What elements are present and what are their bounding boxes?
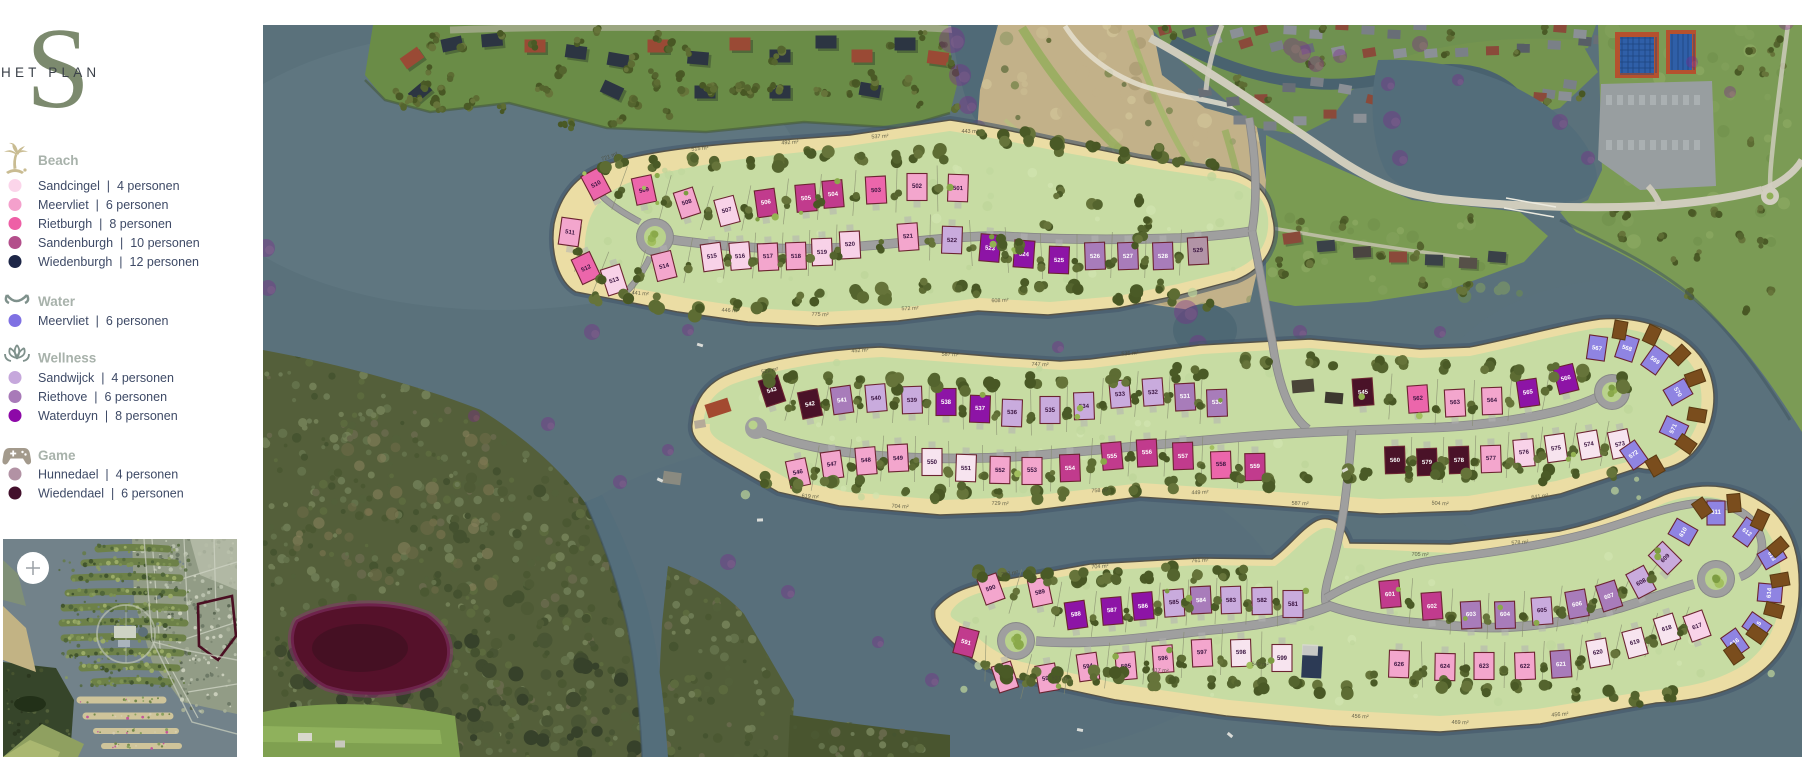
svg-text:581: 581: [1288, 602, 1299, 608]
svg-text:537: 537: [975, 406, 986, 412]
svg-text:704 m²: 704 m²: [1091, 563, 1109, 570]
svg-text:533: 533: [1115, 392, 1126, 399]
svg-text:Sandenburgh | 10 personen: Sandenburgh | 10 personen: [38, 236, 200, 250]
svg-text:526: 526: [1090, 254, 1101, 260]
svg-text:517: 517: [763, 254, 774, 261]
svg-text:582: 582: [1257, 598, 1268, 604]
svg-text:576: 576: [1519, 450, 1530, 457]
svg-text:518: 518: [791, 254, 802, 260]
svg-text:521: 521: [903, 234, 914, 241]
svg-text:705 m²: 705 m²: [1411, 552, 1428, 559]
svg-text:587 m²: 587 m²: [1291, 501, 1308, 508]
svg-text:553: 553: [1027, 468, 1038, 474]
svg-text:539: 539: [907, 398, 918, 404]
svg-text:554: 554: [1065, 466, 1076, 472]
svg-text:604: 604: [1500, 612, 1511, 618]
svg-text:469 m²: 469 m²: [1451, 720, 1468, 727]
svg-text:549 m²: 549 m²: [1251, 662, 1269, 669]
svg-text:532: 532: [1148, 390, 1159, 397]
svg-text:621: 621: [1556, 662, 1567, 669]
svg-text:550: 550: [927, 460, 938, 466]
svg-text:578: 578: [1454, 458, 1465, 464]
svg-text:522: 522: [947, 238, 958, 244]
svg-text:549: 549: [893, 456, 904, 463]
svg-text:729 m²: 729 m²: [991, 501, 1008, 508]
svg-text:611: 611: [1711, 510, 1721, 516]
svg-text:622: 622: [1520, 664, 1531, 670]
svg-text:528: 528: [1158, 254, 1169, 260]
svg-text:599: 599: [1277, 656, 1288, 662]
svg-text:583: 583: [1226, 598, 1237, 604]
svg-text:555: 555: [1107, 454, 1118, 461]
svg-text:Meervliet | 6 personen: Meervliet | 6 personen: [38, 314, 168, 328]
svg-text:492 m²: 492 m²: [781, 140, 799, 147]
svg-text:775 m²: 775 m²: [811, 312, 828, 319]
svg-text:Wiedenburgh | 12 personen: Wiedenburgh | 12 personen: [38, 255, 199, 269]
svg-text:596: 596: [1158, 656, 1169, 663]
svg-text:558: 558: [1216, 462, 1227, 468]
svg-text:531: 531: [1180, 394, 1191, 401]
svg-text:527: 527: [1123, 254, 1134, 260]
svg-text:Waterduyn | 8 personen: Waterduyn | 8 personen: [38, 409, 178, 423]
svg-text:559: 559: [1250, 464, 1261, 470]
svg-text:614: 614: [1767, 587, 1774, 598]
svg-text:505: 505: [801, 196, 812, 203]
svg-text:562: 562: [1413, 396, 1424, 403]
svg-text:597: 597: [1197, 650, 1208, 657]
svg-text:456 m²: 456 m²: [1551, 711, 1569, 718]
svg-text:608 m²: 608 m²: [991, 298, 1008, 305]
svg-text:598: 598: [1236, 650, 1247, 656]
svg-text:617 m²: 617 m²: [1151, 667, 1169, 674]
svg-text:520: 520: [845, 242, 856, 249]
svg-text:587 m²: 587 m²: [941, 352, 958, 359]
svg-text:501: 501: [953, 186, 964, 192]
svg-text:443 m²: 443 m²: [961, 129, 978, 135]
svg-text:HET PLAN: HET PLAN: [1, 65, 100, 80]
svg-text:Game: Game: [38, 448, 76, 463]
svg-text:602: 602: [1427, 604, 1438, 611]
svg-text:587: 587: [1107, 608, 1118, 615]
svg-text:Beach: Beach: [38, 153, 79, 168]
svg-text:Riethove | 6 personen: Riethove | 6 personen: [38, 390, 167, 404]
svg-text:Wellness: Wellness: [38, 351, 96, 366]
svg-text:Meervliet | 6 personen: Meervliet | 6 personen: [38, 198, 168, 212]
svg-text:552: 552: [995, 468, 1006, 474]
svg-text:Sandcingel | 4 personen: Sandcingel | 4 personen: [38, 179, 180, 193]
svg-text:Water: Water: [38, 294, 76, 309]
svg-text:605: 605: [1537, 608, 1548, 615]
svg-text:Hunnedael | 4 personen: Hunnedael | 4 personen: [38, 468, 178, 482]
svg-text:563: 563: [1450, 400, 1461, 407]
svg-text:584: 584: [1196, 598, 1207, 605]
svg-text:626: 626: [1394, 662, 1405, 668]
svg-text:504: 504: [828, 192, 839, 199]
svg-text:Sandwijck | 4 personen: Sandwijck | 4 personen: [38, 371, 174, 385]
svg-text:516: 516: [735, 254, 746, 261]
svg-text:579: 579: [1422, 460, 1433, 466]
svg-text:761 m²: 761 m²: [1191, 558, 1208, 565]
svg-text:585: 585: [1169, 600, 1180, 607]
svg-text:704 m²: 704 m²: [891, 504, 909, 511]
svg-text:577: 577: [1486, 456, 1497, 462]
svg-text:603: 603: [1466, 612, 1477, 619]
svg-text:623: 623: [1479, 664, 1490, 670]
svg-text:586: 586: [1138, 604, 1149, 611]
svg-text:560: 560: [1390, 458, 1401, 464]
svg-text:504 m²: 504 m²: [1431, 501, 1449, 508]
svg-text:548: 548: [861, 458, 872, 465]
svg-text:758 m²: 758 m²: [1091, 488, 1109, 495]
svg-text:564: 564: [1487, 398, 1498, 404]
svg-text:556: 556: [1142, 450, 1153, 457]
svg-text:601: 601: [1385, 592, 1396, 599]
svg-text:572 m²: 572 m²: [901, 306, 918, 313]
svg-text:578 m²: 578 m²: [1511, 539, 1529, 546]
svg-text:535: 535: [1045, 408, 1056, 414]
svg-text:Rietburgh | 8 personen: Rietburgh | 8 personen: [38, 217, 172, 231]
svg-text:456 m²: 456 m²: [1351, 714, 1369, 721]
svg-text:540: 540: [871, 396, 882, 403]
svg-text:747 m²: 747 m²: [1031, 362, 1048, 369]
svg-text:452 m²: 452 m²: [851, 348, 869, 355]
svg-text:502: 502: [912, 184, 923, 190]
svg-text:449 m²: 449 m²: [1191, 490, 1208, 497]
svg-text:551: 551: [961, 466, 972, 472]
svg-text:537 m²: 537 m²: [871, 134, 889, 141]
svg-text:Wiedendael | 6 personen: Wiedendael | 6 personen: [38, 487, 184, 501]
svg-text:525: 525: [1054, 258, 1065, 264]
svg-text:536: 536: [1007, 410, 1018, 416]
svg-text:624: 624: [1440, 664, 1451, 670]
svg-text:529: 529: [1193, 248, 1204, 255]
svg-text:519: 519: [817, 250, 828, 256]
svg-text:538: 538: [941, 400, 952, 406]
svg-text:557: 557: [1178, 454, 1189, 460]
svg-text:503: 503: [871, 188, 882, 195]
svg-text:446 m²: 446 m²: [721, 308, 739, 315]
svg-text:535 m²: 535 m²: [1121, 350, 1139, 357]
